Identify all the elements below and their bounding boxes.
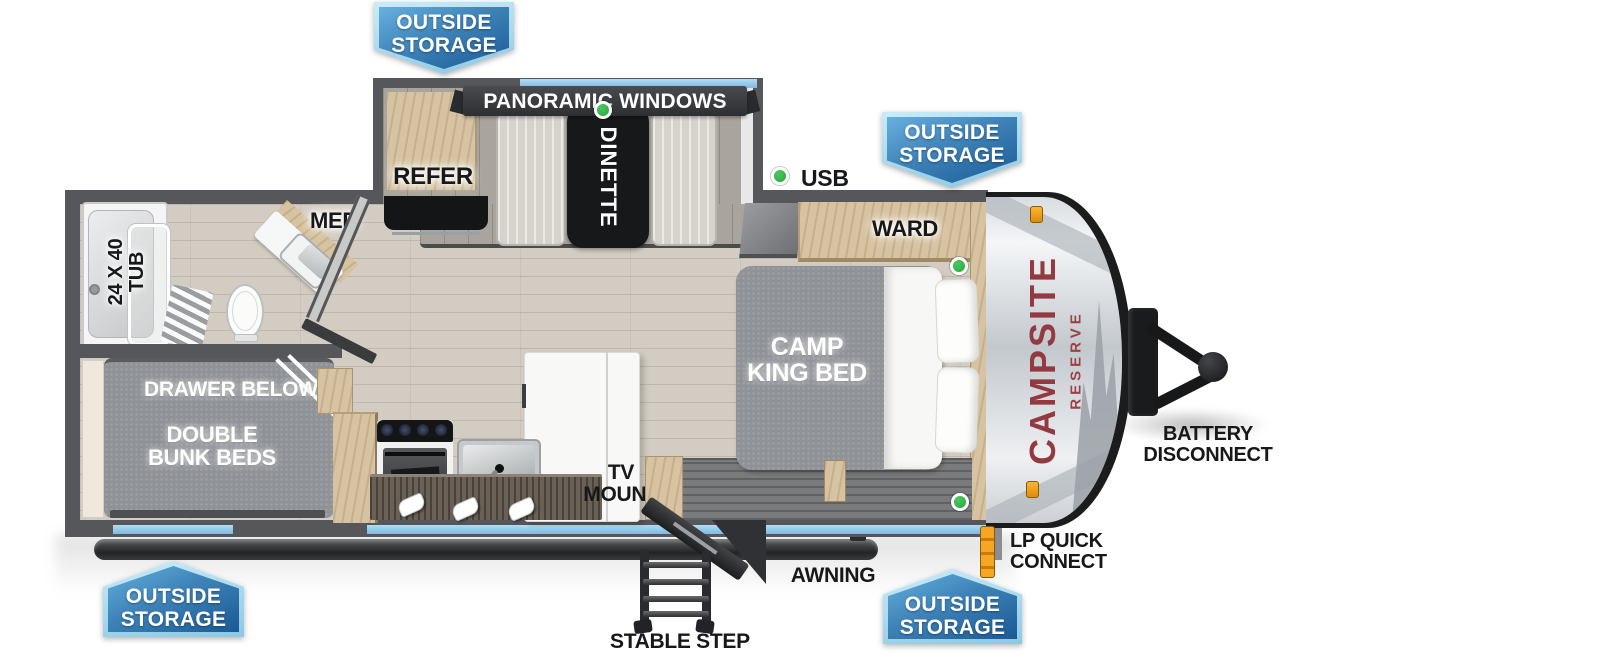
bedside-indicator-dot: [951, 493, 969, 511]
badge-line2: STORAGE: [103, 608, 244, 631]
badge-text: OUTSIDE STORAGE: [883, 569, 1022, 644]
bunk-label-line1: DOUBLE: [132, 423, 292, 446]
king-bed-line1: CAMP: [727, 334, 887, 360]
rear-wall: [65, 190, 80, 537]
ward-label: WARD: [872, 216, 938, 242]
tv-wall-hinge: [522, 384, 526, 408]
badge-text: OUTSIDE STORAGE: [103, 561, 244, 637]
lp-quick-connect-label: LP QUICK CONNECT: [1010, 531, 1107, 573]
oven-handle: [385, 452, 445, 456]
hitch-coupler-ball: [1198, 352, 1228, 382]
tub-label-line2: TUB: [127, 239, 148, 306]
king-bed-line2: KING BED: [727, 360, 887, 386]
stove-burner-2: [399, 424, 411, 436]
stable-step-label: STABLE STEP: [610, 630, 744, 654]
marker-light-bottom: [1026, 481, 1039, 498]
bunk-window: [113, 525, 233, 534]
step-rung-3: [643, 596, 709, 602]
bunk-label: DOUBLE BUNK BEDS: [132, 423, 292, 469]
battery-label-line2: DISCONNECT: [1138, 445, 1278, 466]
king-bed-label: CAMP KING BED: [727, 334, 887, 386]
refer-rail: [392, 232, 480, 235]
brand-primary: CAMPSITE: [1022, 255, 1064, 465]
panoramic-window-indicator-dot: [594, 101, 612, 119]
king-bed-sheet: [884, 267, 942, 469]
floorplan-canvas: DINETTE PANORAMIC WINDOWS REFER 24 X 40 …: [0, 0, 1600, 663]
badge-line1: OUTSIDE: [883, 593, 1022, 616]
refer-label: REFER: [393, 163, 473, 191]
bed-pillow-top: [935, 278, 980, 363]
badge-text: OUTSIDE STORAGE: [882, 112, 1022, 188]
outside-storage-badge-bottom-right: OUTSIDE STORAGE: [883, 569, 1022, 644]
nightstand: [824, 460, 846, 502]
bath-bottom-wall: [65, 344, 342, 358]
badge-line1: OUTSIDE: [103, 585, 244, 608]
lp-label-line2: CONNECT: [1010, 552, 1107, 573]
bed-pillow-bottom: [935, 366, 980, 453]
marker-light-top: [1030, 206, 1043, 223]
dinette-label: DINETTE: [595, 126, 621, 227]
dinette-bench-right: [651, 112, 717, 246]
battery-label-line1: BATTERY: [1138, 424, 1278, 445]
overhead-cabinet: [739, 203, 803, 258]
lp-connect-post: [995, 528, 1002, 560]
step-rung-4: [643, 611, 709, 617]
stove-burner-4: [435, 424, 447, 436]
lp-label-line1: LP QUICK: [1010, 531, 1107, 552]
outside-storage-badge-bottom-left: OUTSIDE STORAGE: [103, 561, 244, 637]
toilet-hinge: [234, 334, 258, 342]
bunk-drawer-label: DRAWER BELOW: [144, 378, 304, 402]
step-rung-2: [643, 579, 709, 585]
stove-burner-1: [381, 424, 393, 436]
badge-line2: STORAGE: [882, 144, 1022, 167]
bunk-side-shelf: [82, 360, 104, 518]
badge-line1: OUTSIDE: [882, 121, 1022, 144]
bunk-footboard: [110, 510, 325, 518]
dinette-bench-left: [496, 112, 566, 246]
badge-line2: STORAGE: [883, 616, 1022, 639]
ward-indicator-dot: [950, 257, 968, 275]
battery-disconnect-label: BATTERY DISCONNECT: [1138, 424, 1278, 466]
outside-storage-badge-top-right: OUTSIDE STORAGE: [882, 112, 1022, 188]
bunk-upper-panel: [317, 368, 353, 414]
awning-label: AWNING: [770, 564, 896, 588]
brand-secondary: RESERVE: [1068, 310, 1085, 409]
stove-burner-3: [417, 424, 429, 436]
usb-label: USB: [801, 165, 849, 192]
tub-drain: [89, 284, 100, 295]
step-rung-1: [643, 562, 709, 568]
refer-base: [384, 196, 488, 230]
bunk-label-line2: BUNK BEDS: [132, 446, 292, 469]
tub-label-line1: 24 X 40: [106, 239, 127, 306]
badge-text: OUTSIDE STORAGE: [374, 2, 514, 74]
badge-line2: STORAGE: [374, 34, 514, 57]
tub-label: 24 X 40 TUB: [106, 239, 148, 306]
badge-line1: OUTSIDE: [374, 11, 514, 34]
toilet-seat: [232, 291, 258, 331]
outside-storage-badge-top-left: OUTSIDE STORAGE: [374, 2, 514, 74]
usb-indicator-dot: [771, 167, 789, 185]
